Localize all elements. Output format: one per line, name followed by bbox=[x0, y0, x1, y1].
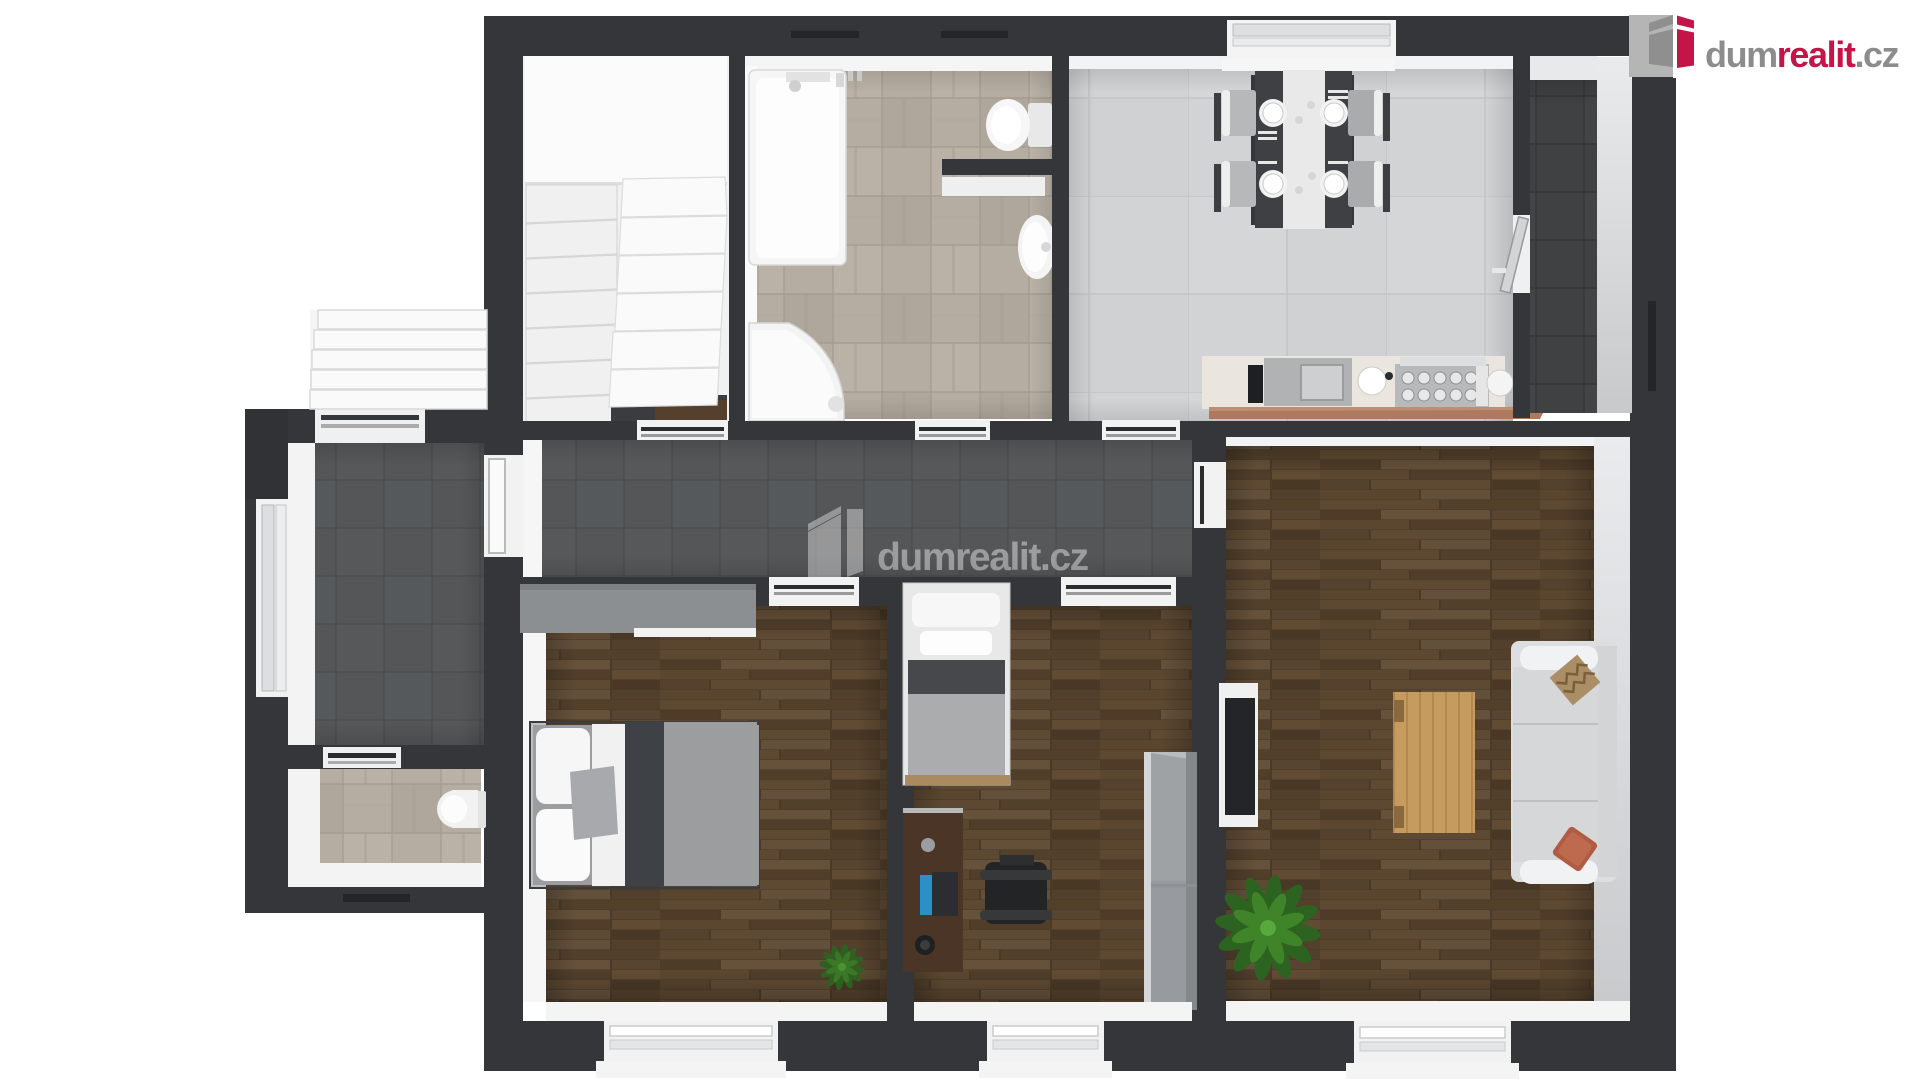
svg-text:dumrealit.cz: dumrealit.cz bbox=[877, 536, 1089, 579]
svg-text:dumrealit.cz: dumrealit.cz bbox=[1705, 34, 1899, 75]
